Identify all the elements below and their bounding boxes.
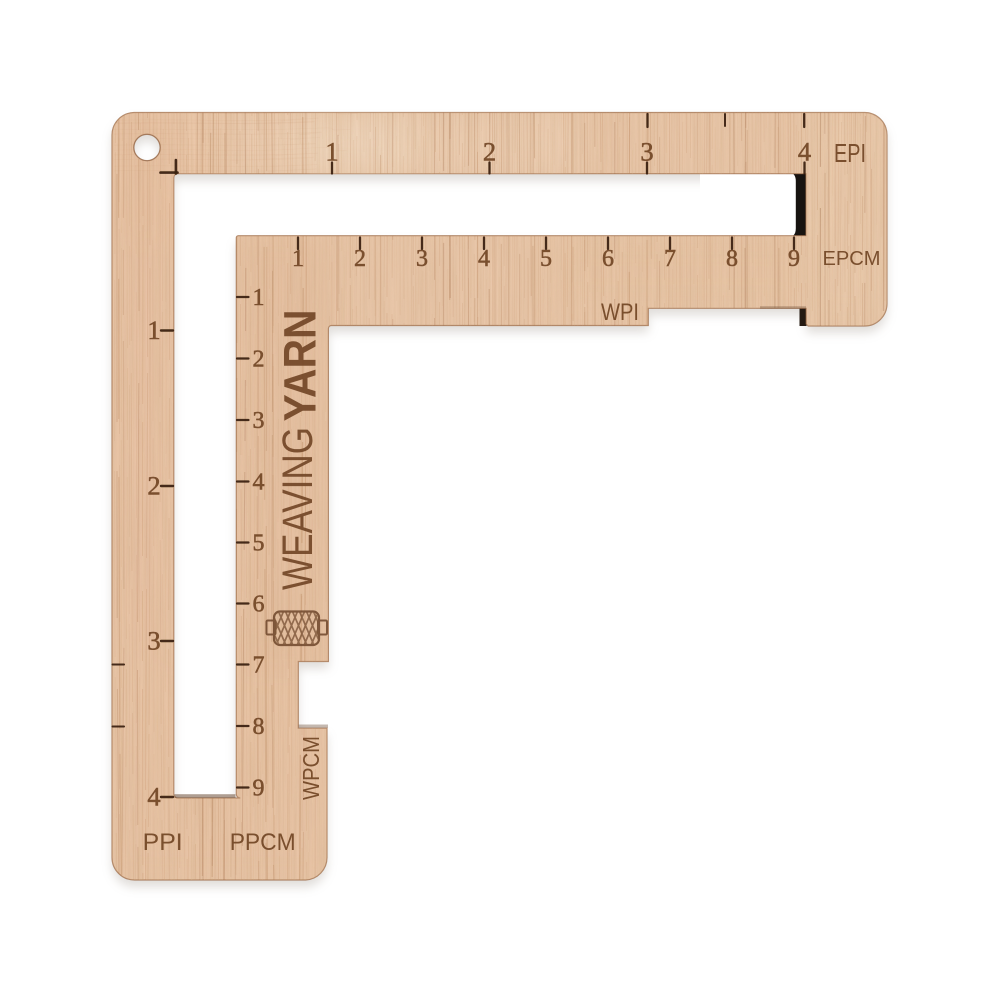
svg-text:8: 8	[726, 246, 738, 272]
svg-text:4: 4	[147, 782, 160, 812]
svg-text:3: 3	[253, 408, 265, 434]
svg-text:2: 2	[253, 347, 265, 373]
svg-text:5: 5	[253, 531, 265, 557]
svg-text:2: 2	[354, 246, 366, 272]
svg-text:EPI: EPI	[834, 140, 866, 168]
svg-text:7: 7	[253, 653, 265, 679]
svg-text:1: 1	[253, 285, 265, 311]
svg-text:8: 8	[253, 714, 265, 740]
svg-text:PPCM: PPCM	[230, 830, 296, 856]
svg-text:4: 4	[478, 246, 490, 272]
svg-text:6: 6	[602, 246, 614, 272]
svg-text:9: 9	[788, 246, 800, 272]
svg-text:WPI: WPI	[601, 299, 639, 326]
svg-text:WEAVING: WEAVING	[274, 427, 322, 590]
svg-text:WPCM: WPCM	[298, 736, 324, 800]
svg-text:EPCM: EPCM	[823, 247, 881, 270]
svg-text:PPI: PPI	[143, 830, 183, 856]
svg-text:7: 7	[664, 246, 676, 272]
svg-text:1: 1	[292, 246, 304, 272]
svg-text:1: 1	[147, 315, 160, 345]
svg-text:3: 3	[416, 246, 428, 272]
svg-text:YARN: YARN	[275, 310, 326, 422]
svg-text:4: 4	[253, 470, 265, 496]
svg-text:5: 5	[540, 246, 552, 272]
svg-text:2: 2	[147, 471, 160, 501]
svg-text:3: 3	[147, 626, 160, 656]
svg-text:9: 9	[253, 776, 265, 802]
svg-text:6: 6	[253, 592, 265, 618]
